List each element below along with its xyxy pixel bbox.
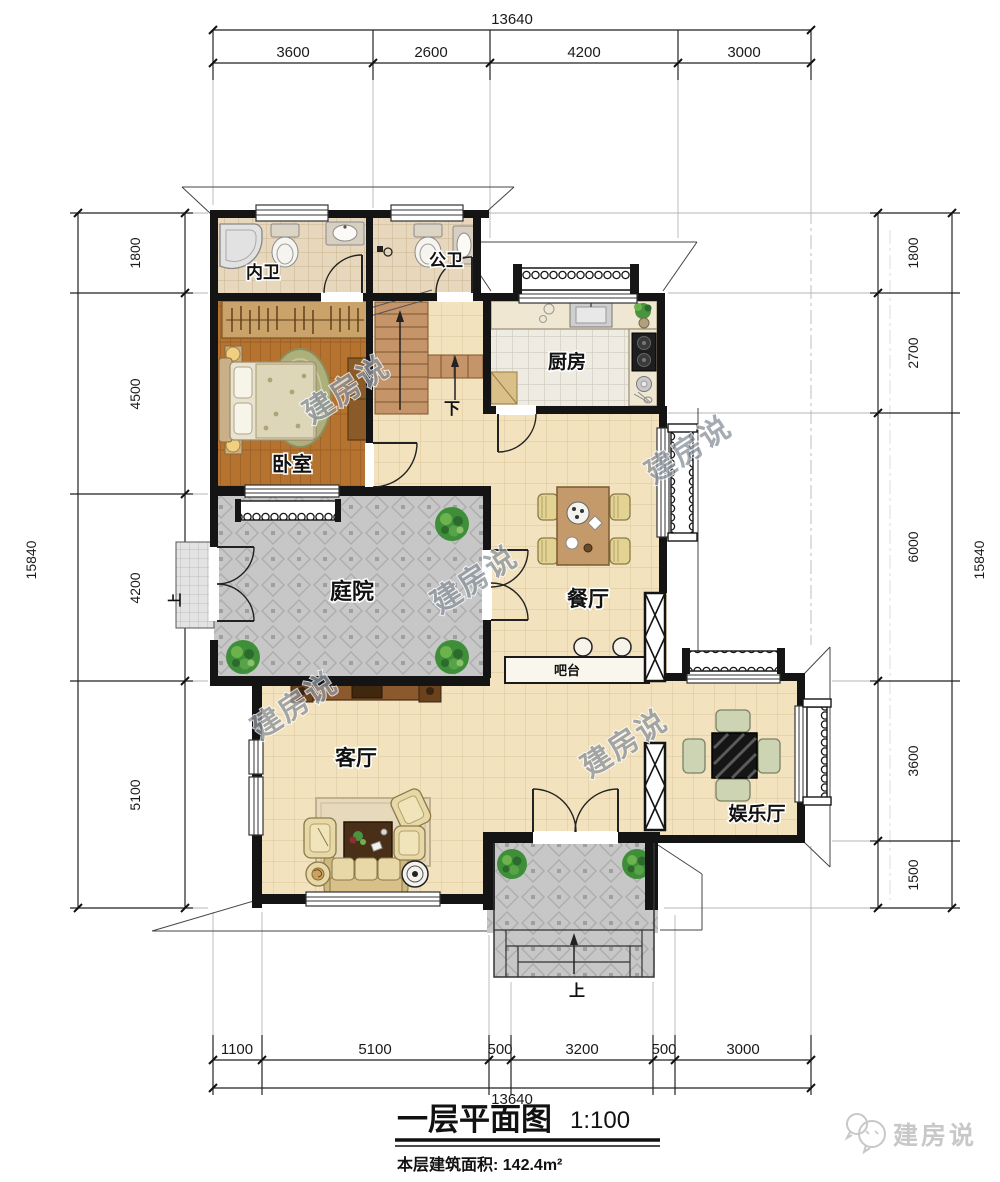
toilet-tank xyxy=(271,224,299,237)
dining-living-floor xyxy=(483,406,667,843)
dim-left-4: 5100 xyxy=(127,779,143,810)
balcony-railing xyxy=(513,264,639,294)
window xyxy=(249,777,263,835)
label-kitchen: 厨房 xyxy=(548,350,586,373)
label-entertainment: 娱乐厅 xyxy=(728,802,785,825)
logo-text: 建房说 xyxy=(893,1121,977,1150)
window xyxy=(687,671,780,683)
dim-left-3: 4200 xyxy=(127,572,143,603)
window xyxy=(249,740,263,774)
dim-left-2: 4500 xyxy=(127,378,143,409)
courtyard-railing xyxy=(235,499,341,522)
dining-chair xyxy=(538,494,558,520)
mahjong-table xyxy=(712,733,757,778)
dim-top-2: 2600 xyxy=(414,44,447,61)
entertainment-north-railing xyxy=(682,648,785,674)
label-living: 客厅 xyxy=(335,746,377,770)
plan-title: 一层平面图 xyxy=(397,1102,552,1137)
chat-bubble-icon xyxy=(859,1121,885,1147)
label-bedroom: 卧室 xyxy=(272,452,312,476)
west-stoop xyxy=(176,542,214,628)
bar-label: 吧台 xyxy=(554,663,580,678)
game-chair xyxy=(716,779,750,801)
dim-top-4: 3000 xyxy=(727,44,760,61)
dim-bottom-2: 5100 xyxy=(358,1041,391,1058)
shrub xyxy=(497,849,527,879)
dining-chair xyxy=(610,494,630,520)
dim-left-1: 1800 xyxy=(127,237,143,268)
tv xyxy=(352,684,382,698)
game-chair xyxy=(758,739,780,773)
toilet-tank xyxy=(414,224,442,237)
label-public-bath: 公卫 xyxy=(429,251,463,270)
dim-right-total: 15840 xyxy=(971,540,987,579)
label-dining: 餐厅 xyxy=(567,587,609,611)
label-courtyard: 庭院 xyxy=(330,579,374,604)
dining-table xyxy=(557,487,609,565)
bar-stool xyxy=(613,638,631,656)
plate xyxy=(567,502,589,524)
bar-stool xyxy=(574,638,592,656)
dim-right-1: 1800 xyxy=(905,237,921,268)
game-chair xyxy=(716,710,750,732)
dimension-chain-top: 13640 3600 2600 4200 3000 xyxy=(209,11,815,80)
sofa xyxy=(324,856,408,894)
brand-logo: 建房说 xyxy=(847,1114,977,1152)
dim-top-total: 13640 xyxy=(491,11,533,28)
window xyxy=(245,485,339,497)
entertainment-east-railing xyxy=(803,699,831,805)
pillow xyxy=(234,403,252,434)
dining-chair xyxy=(610,538,630,564)
title-block: 一层平面图 1:100 本层建筑面积: 142.4m² xyxy=(395,1102,660,1174)
plan-area: 本层建筑面积: 142.4m² xyxy=(397,1155,562,1174)
window xyxy=(519,290,637,303)
dim-right-2: 2700 xyxy=(905,337,921,368)
floor-plan-page: 13640 3600 2600 4200 3000 1100 5100 500 … xyxy=(0,0,1000,1182)
dim-right-4: 3600 xyxy=(905,745,921,776)
dim-top-3: 4200 xyxy=(567,44,600,61)
shrub xyxy=(435,507,469,541)
window xyxy=(256,205,328,221)
window xyxy=(391,205,463,221)
dim-bottom-6: 3000 xyxy=(726,1041,759,1058)
window xyxy=(795,706,807,802)
dim-right-5: 1500 xyxy=(905,859,921,890)
dim-left-total: 15840 xyxy=(23,540,39,579)
dim-bottom-3: 500 xyxy=(487,1041,512,1058)
shrub xyxy=(226,640,260,674)
pillow xyxy=(234,367,252,398)
floor-plan-drawing: 13640 3600 2600 4200 3000 1100 5100 500 … xyxy=(0,0,1000,1182)
dim-bottom-4: 3200 xyxy=(565,1041,598,1058)
dimension-chain-left: 1800 4500 4200 5100 15840 xyxy=(23,209,193,912)
dim-bottom-1: 1100 xyxy=(221,1041,253,1058)
dim-bottom-5: 500 xyxy=(651,1041,676,1058)
dining-chair xyxy=(538,538,558,564)
dimension-chain-bottom: 1100 5100 500 3200 500 3000 13640 xyxy=(209,1035,815,1108)
dim-top-1: 3600 xyxy=(276,44,309,61)
dimension-chain-right: 1800 2700 6000 3600 1500 15840 xyxy=(870,209,987,912)
label-inner-bath: 内卫 xyxy=(246,262,280,282)
game-chair xyxy=(683,739,705,773)
dim-right-3: 6000 xyxy=(905,531,921,562)
shrub xyxy=(435,640,469,674)
window xyxy=(306,892,440,906)
stair-down-label: 下 xyxy=(444,401,460,418)
entry-up-label: 上 xyxy=(569,982,585,1000)
west-up-label: 上 xyxy=(167,593,183,607)
plan-scale: 1:100 xyxy=(570,1107,630,1134)
